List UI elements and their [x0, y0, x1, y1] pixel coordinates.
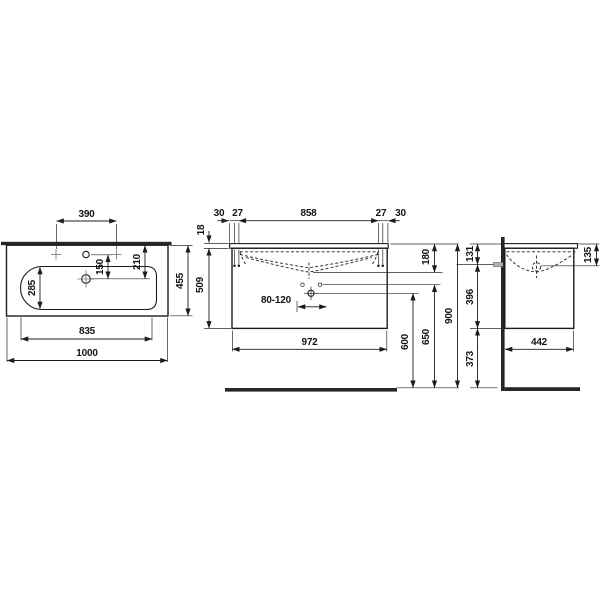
- dim-plan-faucet-to-drain: 150: [96, 258, 106, 274]
- dim-front-trap-range: 80-120: [261, 296, 291, 306]
- technical-drawing-page: 390 150 210 285 455 835 1000 30 27 858 2…: [0, 0, 600, 600]
- dim-side-top-to-outlet: 131: [466, 245, 476, 261]
- dim-plan-rim-to-drain: 210: [133, 253, 143, 269]
- dim-front-fix-left: 27: [232, 209, 243, 219]
- side-dimensions: [457, 244, 600, 388]
- drawing-canvas: [0, 0, 600, 600]
- front-top-dimension-chain: [218, 221, 400, 244]
- front-left-dimensions: [204, 231, 231, 328]
- plan-optional-hole-left-cross: [51, 250, 61, 260]
- side-cabinet-outline: [505, 248, 574, 328]
- front-fixing-hole-left: [301, 283, 304, 286]
- dim-side-top-to-outlet-right: 135: [584, 247, 594, 263]
- front-view: [204, 221, 400, 392]
- plan-faucet-hole: [83, 251, 89, 257]
- plan-optional-hole-right-cross: [112, 250, 122, 260]
- dim-side-bottom-to-floor: 373: [466, 351, 476, 367]
- dim-plan-bowl-depth: 285: [28, 280, 38, 296]
- dim-plan-total-width: 1000: [76, 349, 97, 359]
- dim-front-top-thickness: 18: [197, 225, 207, 236]
- front-bowl-hidden-contour: [240, 252, 378, 279]
- dim-side-outlet-to-bottom: 396: [466, 288, 476, 304]
- dim-plan-bowl-width: 835: [79, 327, 95, 337]
- front-cabinet-outline: [232, 248, 387, 328]
- dim-plan-faucet-spacing: 390: [78, 210, 94, 220]
- side-floor-line: [505, 387, 580, 391]
- side-wall-section: [501, 237, 505, 391]
- dim-front-edge-left: 30: [214, 209, 225, 219]
- plan-bowl-outline: [21, 267, 157, 310]
- dim-front-edge-right: 30: [395, 209, 406, 219]
- side-bowl-hidden-contour: [507, 252, 576, 278]
- dim-plan-total-depth: 455: [176, 272, 186, 288]
- front-fixing-hole-right: [318, 283, 321, 286]
- dim-front-body-height: 509: [196, 277, 206, 293]
- front-floor-line: [225, 388, 397, 392]
- dim-front-fix-right: 27: [376, 209, 387, 219]
- dim-fixing-height: 650: [422, 328, 432, 344]
- dim-side-depth: 442: [531, 338, 547, 348]
- side-wall-outlet-pipe: [494, 262, 504, 266]
- height-dimension-column: [313, 244, 459, 388]
- side-view: [457, 237, 600, 391]
- dim-drain-height: 600: [401, 334, 411, 350]
- dim-front-cabinet-width: 972: [301, 338, 317, 348]
- dim-mount-height: 900: [445, 307, 455, 323]
- front-trap-range: [297, 301, 327, 312]
- dim-top-to-bowl-bottom: 180: [422, 249, 432, 265]
- dim-front-fix-span: 858: [300, 209, 316, 219]
